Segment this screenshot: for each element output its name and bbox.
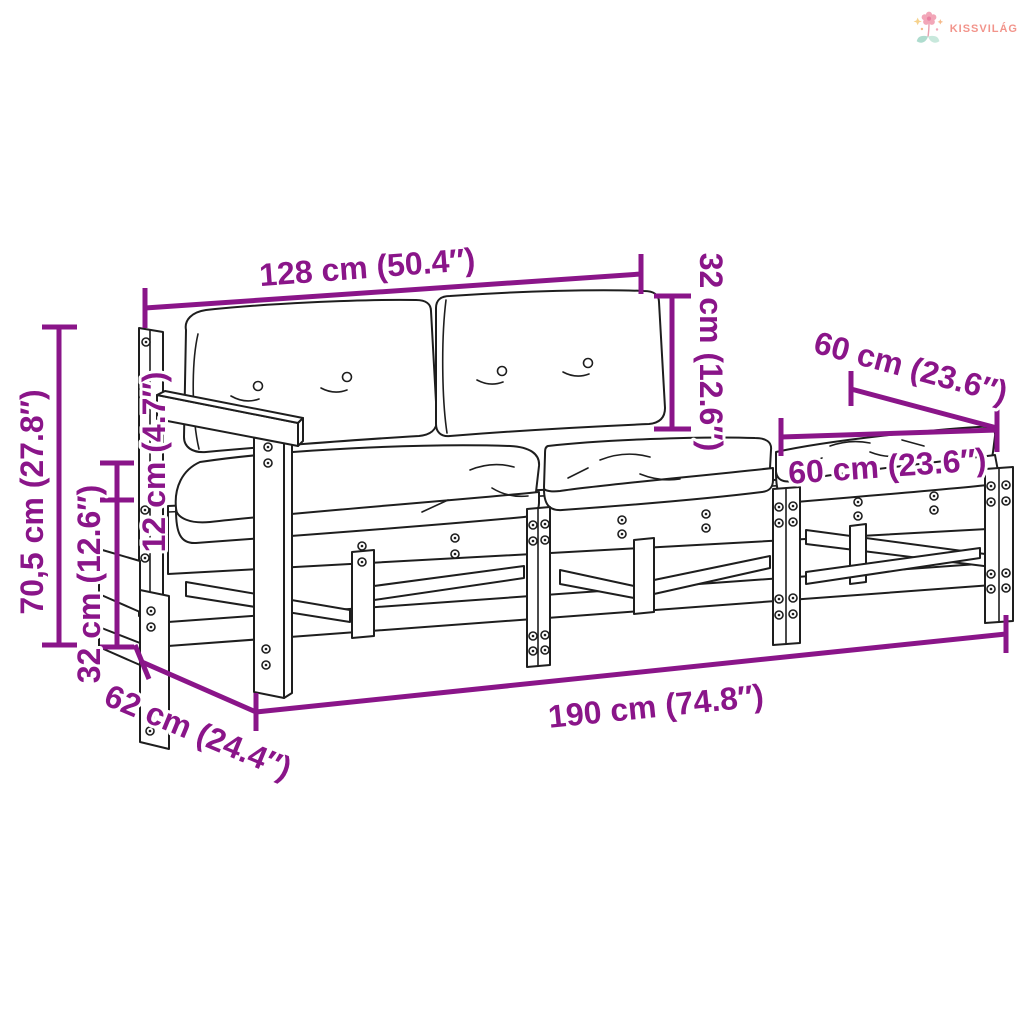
dim-ottoman-depth-label: 60 cm (23.6″) [810, 324, 1011, 410]
diagram-svg: 128 cm (50.4″) 32 cm (12.6″) 60 cm (23.6… [0, 0, 1024, 1024]
brand-name: KISSVILÁG [950, 23, 1018, 35]
dim-frame-height-label: 32 cm (12.6″) [71, 485, 107, 684]
dim-total-length-label: 190 cm (74.8″) [546, 677, 765, 735]
dim-cushion-thickness-label: 12 cm (4.7″) [136, 372, 172, 553]
flower-icon [912, 10, 946, 48]
dim-back-cushion-height-label: 32 cm (12.6″) [693, 253, 729, 452]
brand-logo: KISSVILÁG [912, 10, 1018, 48]
product-dimension-diagram: 128 cm (50.4″) 32 cm (12.6″) 60 cm (23.6… [0, 0, 1024, 1024]
dim-total-height-label: 70,5 cm (27.8″) [14, 389, 50, 614]
